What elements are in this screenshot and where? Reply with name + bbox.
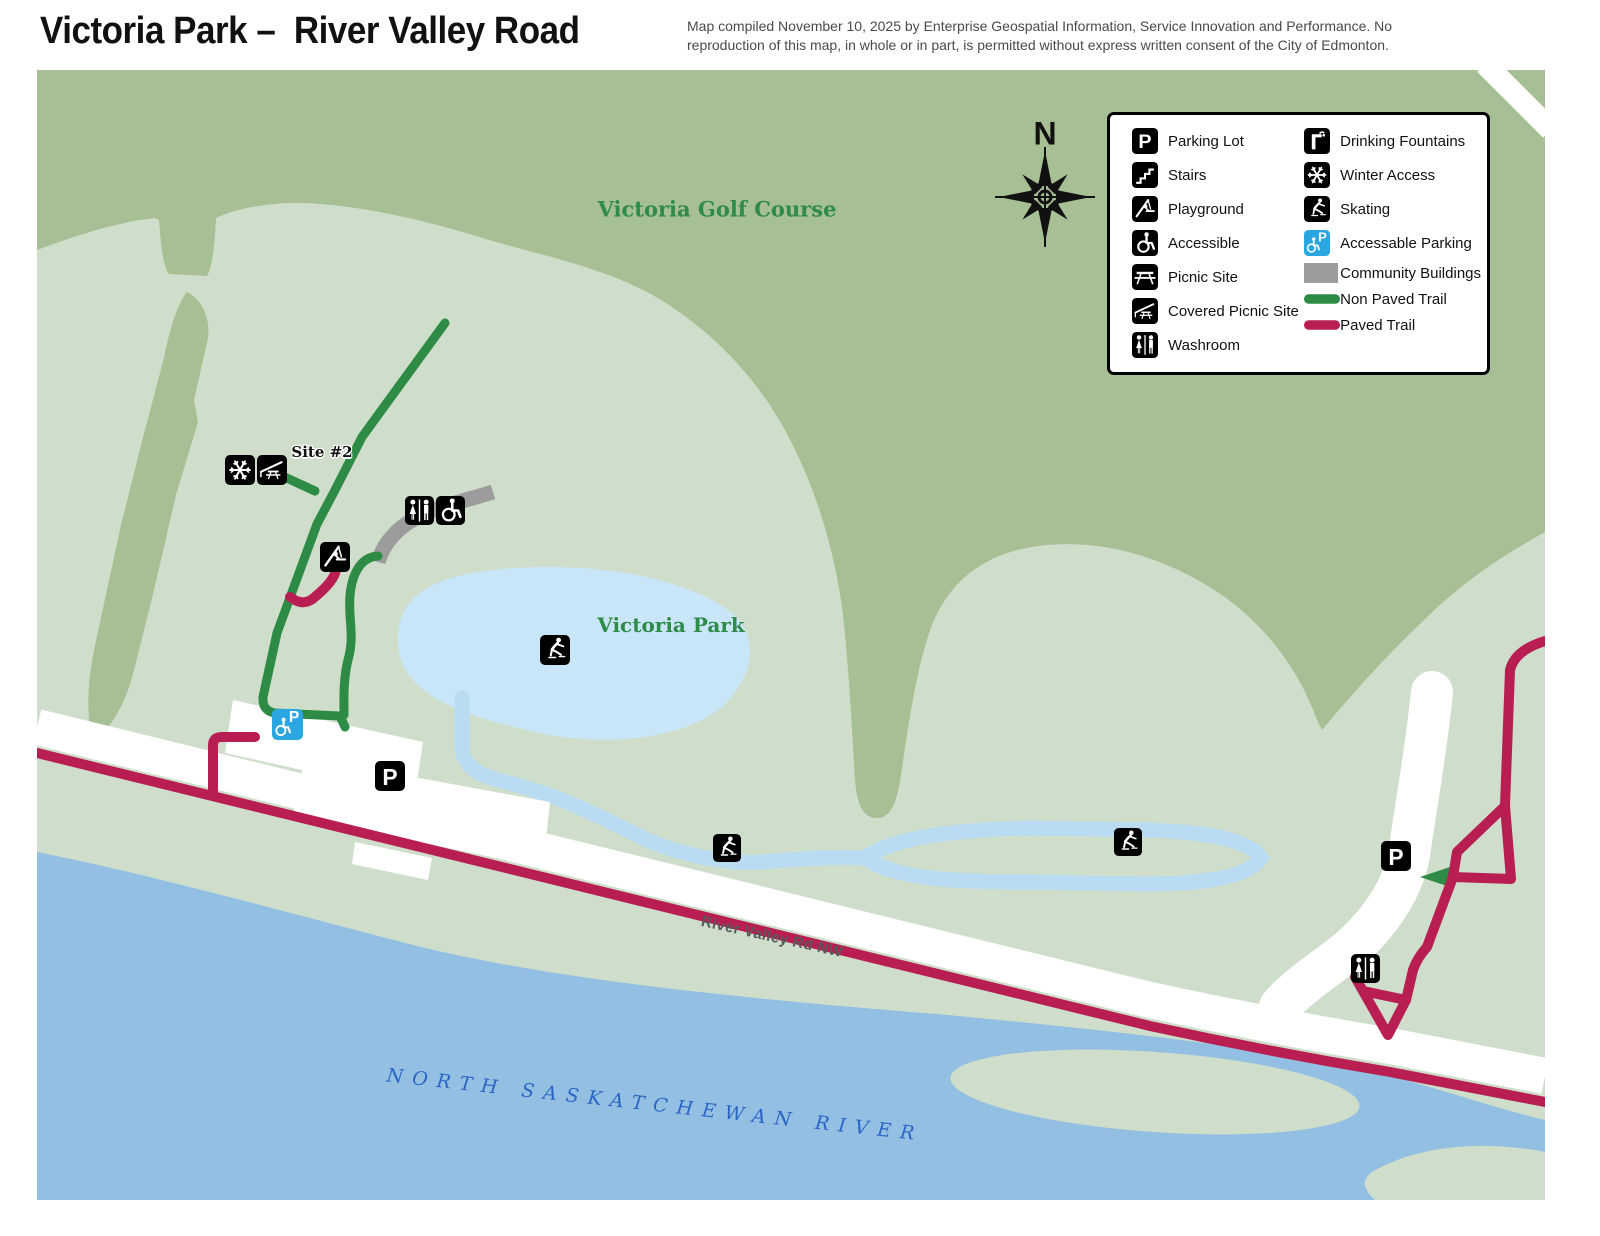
marker-covered-picnic-icon [257,455,287,485]
line-green-icon [1304,294,1340,304]
legend-item-parking-lot: PParking Lot [1132,128,1304,154]
legend-item-label: Playground [1168,201,1244,218]
legend-item-label: Skating [1340,201,1390,218]
marker-winter-icon [225,455,255,485]
page: { "header": { "title": "Victoria Park – … [0,0,1600,1236]
disclaimer-text: Map compiled November 10, 2025 by Enterp… [687,17,1517,54]
svg-text:P: P [1388,844,1403,870]
playground-icon [1132,196,1168,222]
stairs-icon [1132,162,1168,188]
svg-text:P: P [1138,131,1151,153]
washroom-icon [1132,332,1168,358]
legend-item-accessible: Accessible [1132,230,1304,256]
fountain-icon [1304,128,1340,154]
marker-skating-icon [713,834,741,862]
page-title: Victoria Park – River Valley Road [40,10,579,53]
marker-skating-icon [540,635,570,665]
legend-item-label: Drinking Fountains [1340,133,1465,150]
accessible-icon [1132,230,1168,256]
marker-skating-icon [1114,828,1142,856]
legend-item-accessable-parking: PAccessable Parking [1304,230,1481,256]
legend-item-stairs: Stairs [1132,162,1304,188]
skating-icon [1304,196,1340,222]
legend-item-label: Accessable Parking [1340,235,1472,252]
winter-icon [1304,162,1340,188]
legend-item-label: Accessible [1168,235,1240,252]
line-crimson-icon [1304,320,1340,330]
legend-item-drinking-fountains: Drinking Fountains [1304,128,1481,154]
legend-item-community-buildings: Community Buildings [1304,264,1481,282]
marker-washroom-icon [405,496,434,525]
svg-text:P: P [288,709,298,726]
park-map: PPP Victoria Golf Course Victoria Park S… [37,70,1545,1200]
svg-text:P: P [382,764,397,790]
legend-item-label: Community Buildings [1340,265,1481,282]
legend-item-covered-picnic-site: Covered Picnic Site [1132,298,1304,324]
legend-item-label: Covered Picnic Site [1168,303,1299,320]
legend-item-label: Stairs [1168,167,1206,184]
legend-item-label: Non Paved Trail [1340,291,1447,308]
legend-item-playground: Playground [1132,196,1304,222]
label-golf-course: Victoria Golf Course [598,197,837,222]
label-site-2: Site #2 [291,443,352,461]
legend-item-skating: Skating [1304,196,1481,222]
legend-item-paved-trail: Paved Trail [1304,316,1481,334]
legend-item-picnic-site: Picnic Site [1132,264,1304,290]
picnic-icon [1132,264,1168,290]
parking-icon: P [1132,128,1168,154]
covered-picnic-icon [1132,298,1168,324]
legend-item-label: Picnic Site [1168,269,1238,286]
legend-item-non-paved-trail: Non Paved Trail [1304,290,1481,308]
compass-rose-icon [990,142,1100,252]
marker-parking-icon: P [1381,841,1411,871]
legend-column-left: PParking LotStairs Playground Accessible… [1132,128,1304,372]
legend-item-washroom: Washroom [1132,332,1304,358]
disclaimer-line-1: Map compiled November 10, 2025 by Enterp… [687,17,1517,36]
community-icon [1304,263,1340,283]
marker-washroom-icon [1351,954,1380,983]
legend-item-label: Paved Trail [1340,317,1415,334]
marker-accessible-parking-icon: P [272,709,303,740]
legend-box: PParking LotStairs Playground Accessible… [1107,112,1490,375]
marker-playground-icon [320,542,350,572]
legend-column-right: Drinking FountainsWinter Access Skating … [1304,128,1481,372]
svg-text:P: P [1318,230,1327,245]
marker-parking-icon: P [375,761,405,791]
legend-item-winter-access: Winter Access [1304,162,1481,188]
legend-item-label: Parking Lot [1168,133,1244,150]
accessible-parking-icon: P [1304,230,1340,256]
legend-item-label: Winter Access [1340,167,1435,184]
legend-item-label: Washroom [1168,337,1240,354]
disclaimer-line-2: reproduction of this map, in whole or in… [687,36,1517,55]
marker-accessible-icon [436,496,465,525]
label-victoria-park: Victoria Park [597,613,744,637]
